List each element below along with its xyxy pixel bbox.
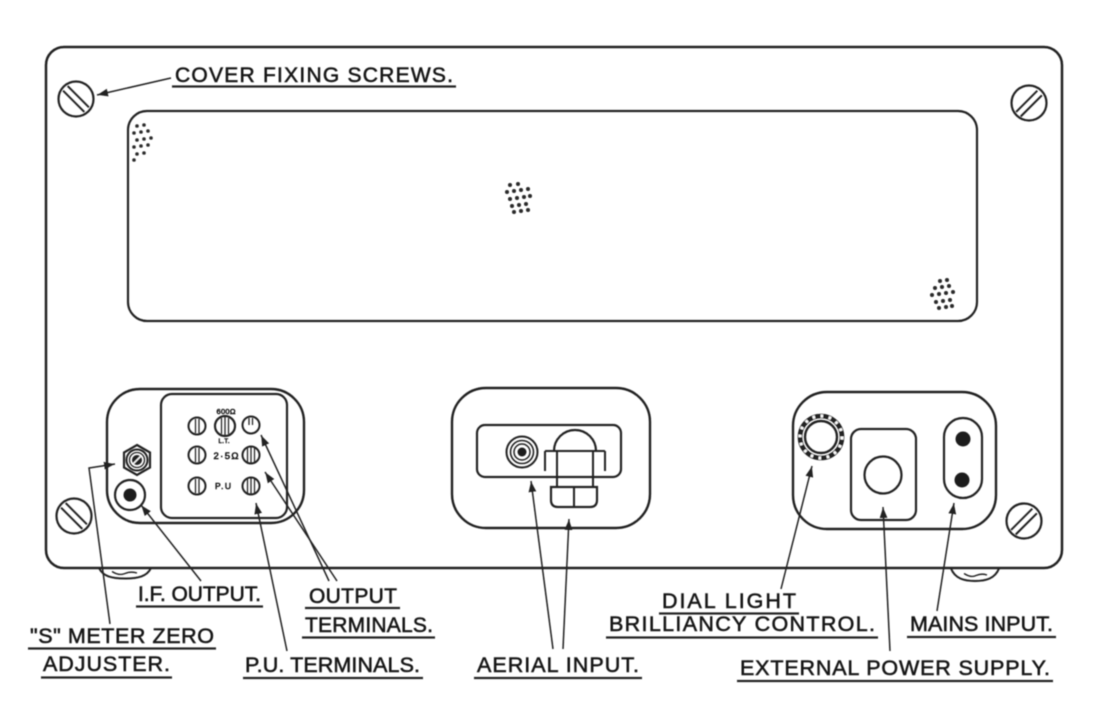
svg-text:L.T.: L.T. (219, 439, 230, 445)
svg-text:COVER FIXING SCREWS.: COVER FIXING SCREWS. (175, 64, 453, 87)
svg-text:DIAL LIGHT: DIAL LIGHT (662, 589, 796, 613)
svg-text:I.F. OUTPUT.: I.F. OUTPUT. (138, 583, 261, 606)
svg-text:ADJUSTER.: ADJUSTER. (43, 652, 170, 676)
svg-text:EXTERNAL POWER SUPPLY.: EXTERNAL POWER SUPPLY. (740, 656, 1050, 680)
svg-text:"S" METER ZERO: "S" METER ZERO (30, 624, 214, 648)
svg-text:P.U: P.U (215, 481, 231, 491)
svg-text:2·5Ω: 2·5Ω (214, 451, 239, 462)
svg-text:BRILLIANCY CONTROL.: BRILLIANCY CONTROL. (609, 612, 875, 636)
svg-text:AERIAL INPUT.: AERIAL INPUT. (477, 653, 639, 677)
svg-text:P.U. TERMINALS.: P.U. TERMINALS. (245, 653, 420, 677)
svg-text:600Ω: 600Ω (217, 407, 236, 416)
svg-text:OUTPUT: OUTPUT (309, 585, 397, 608)
svg-text:TERMINALS.: TERMINALS. (305, 614, 433, 637)
svg-text:MAINS INPUT.: MAINS INPUT. (910, 612, 1053, 636)
